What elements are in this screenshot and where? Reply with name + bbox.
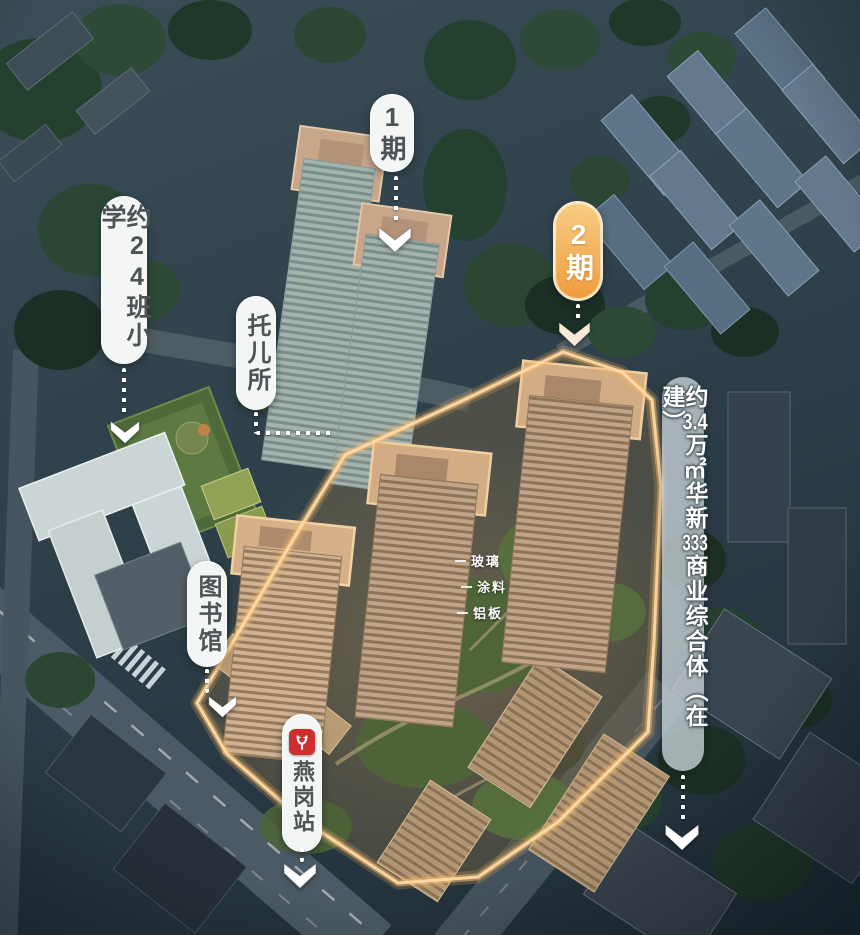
callout-phase2-label: 2期 [564,219,592,284]
aerial-rendering [0,0,860,935]
commercial-number: 333 [682,531,708,554]
callout-metro-label: 燕岗站 [291,760,313,835]
commercial-text: 华新 [682,481,708,531]
callout-nursery: 托儿所 [236,296,276,410]
leader-line [681,775,685,821]
guangzhou-metro-icon [289,729,315,755]
material-note: 铝板 [457,603,507,622]
callout-school-label: 约24班小学 [99,204,149,356]
material-label: 玻璃 [471,551,501,570]
callout-commercial-label: 约3.4万㎡华新333商业综合体（在建） [660,385,706,763]
leader-line [457,612,468,614]
leader-line [461,586,472,588]
leader-line [122,368,126,418]
leader-line [576,304,580,320]
callout-school: 约24班小学 [101,196,147,364]
callout-library: 图书馆 [187,561,227,667]
chevron-down-icon [376,226,414,254]
commercial-unit: ㎡ [682,458,708,481]
commercial-text: 商业综合体 [682,554,708,679]
material-label: 涂料 [477,577,507,596]
material-note: 涂料 [461,577,507,596]
leader-line [205,669,209,693]
chevron-down-icon [281,862,319,890]
callout-nursery-label: 托儿所 [244,313,268,394]
callout-commercial: 约3.4万㎡华新333商业综合体（在建） [662,377,704,771]
commercial-text: 约 [682,385,708,410]
leader-line [394,176,398,224]
chevron-down-icon [556,321,593,348]
leader-line [256,431,336,435]
leader-line [300,848,304,862]
callout-metro-station: 燕岗站 [282,714,322,852]
leader-line [455,560,466,562]
material-label: 铝板 [473,603,503,622]
callout-phase1: 1期 [370,94,414,172]
callout-phase2: 2期 [553,201,603,301]
material-annotations: 玻璃 涂料 铝板 [455,551,507,622]
commercial-number: 3.4 [682,410,708,433]
material-note: 玻璃 [455,551,507,570]
callout-phase1-label: 1期 [379,102,405,164]
chevron-down-icon [108,420,142,445]
chevron-down-icon [662,823,702,852]
page-root: 1期 约24班小学 托儿所 2期 约3.4万㎡华新333商业综合体（在建） 图书… [0,0,860,935]
callout-library-label: 图书馆 [195,574,219,655]
vignette [0,0,860,935]
chevron-down-icon [206,695,239,719]
